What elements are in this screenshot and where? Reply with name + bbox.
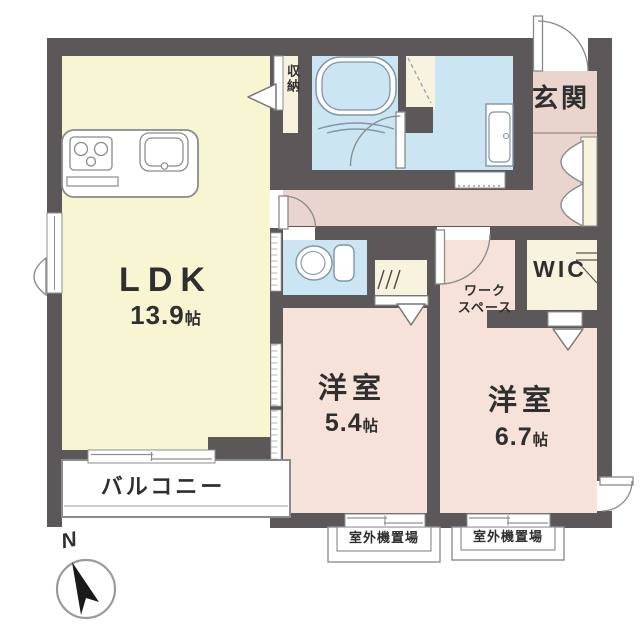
wall-hatch [271, 410, 281, 462]
kitchen-sink-icon [140, 133, 188, 171]
bedroom-small-label: 洋室 [282, 374, 422, 406]
bedroom-large-label: 洋室 [452, 386, 592, 418]
workspace-label-line2: スペース [443, 300, 527, 317]
bedroom-large-sliding-window-icon [467, 514, 550, 527]
bedroom-large-size-label: 6.7帖 [452, 424, 592, 452]
wall-hatch [271, 233, 281, 291]
outdoor-unit-right-label: 室外機置場 [461, 530, 555, 544]
storage-label: 収納 [282, 64, 299, 130]
wall-hatch [271, 344, 281, 406]
balcony-label: バルコニー [63, 475, 263, 499]
ldk-label: LDK [86, 262, 246, 299]
vanity-icon [486, 104, 513, 166]
outdoor-unit-left-label: 室外機置場 [337, 531, 431, 545]
bedroom-small-size-label: 5.4帖 [282, 410, 422, 438]
ldk-side-window-icon [47, 213, 62, 293]
bedroom-small-size-value: 5.4 [325, 409, 363, 437]
wic-label: WIC [518, 257, 602, 282]
ldk-size-value: 13.9 [130, 300, 185, 330]
bedroom-large-size-value: 6.7 [495, 423, 533, 451]
kitchen-stove-icon [67, 137, 118, 186]
ldk-size-unit: 帖 [185, 310, 202, 328]
hallway-floor [276, 185, 605, 232]
workspace-label: ワーク スペース [443, 283, 527, 317]
floorplan-canvas: LDK 13.9帖 洋室 5.4帖 洋室 6.7帖 玄関 WIC ワーク スペー… [0, 0, 640, 631]
bedroom-large-size-unit: 帖 [533, 432, 550, 449]
ldk-size-label: 13.9帖 [86, 301, 246, 330]
entrance-label: 玄関 [519, 84, 603, 113]
compass-icon [57, 560, 115, 618]
washroom-sliding-door-icon [455, 172, 505, 188]
bedroom-small-sliding-window-icon [345, 514, 425, 527]
balcony-sliding-window-icon [88, 450, 215, 463]
bedroom-small-size-unit: 帖 [363, 418, 380, 435]
side-window-swing-icon [34, 258, 46, 295]
toilet-icon [296, 245, 354, 281]
ldk-floor [55, 45, 278, 458]
workspace-label-line1: ワーク [443, 283, 527, 300]
kitchen-counter-icon [62, 130, 198, 197]
